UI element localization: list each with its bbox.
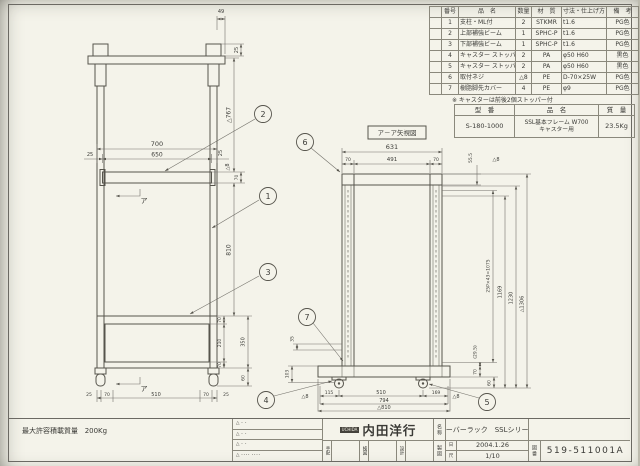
stamp-cell-kenzu: 検図 [359, 440, 396, 461]
cell-qty: 2 [516, 51, 532, 62]
header-dim: 寸法・仕上げ方 [562, 7, 607, 18]
dim-810: 810 [226, 244, 233, 256]
cell-no: 3 [442, 40, 459, 51]
revision-row: △ ･ ･ [233, 440, 322, 451]
model-value-row: S-180-1000 SSL基本フレーム W700 キャスター用 23.5Kg [455, 116, 635, 138]
header-sym [430, 7, 442, 18]
cell-dim: φ50 H60 [562, 51, 607, 62]
stamp-cell-tehai: 手配 [322, 440, 359, 461]
dim-70-base: 70 [473, 369, 479, 375]
cell-name: 支柱・ML付 [459, 18, 516, 29]
header-qty: 数量 [516, 7, 532, 18]
cell-sym [430, 84, 442, 95]
cell-name: キャスター ストッパーなし [459, 62, 516, 73]
cell-dim: t1.6 [562, 40, 607, 51]
dim-794: 794 [379, 398, 389, 404]
dim-1306: △1306 [520, 296, 526, 313]
cell-note: PG色 [607, 73, 639, 84]
parts-row: 7 樹脂脚先カバー 4 PE φ9 PG色 [430, 84, 639, 95]
mark-delta8-br: △8 [452, 394, 459, 400]
model-number: S-180-1000 [455, 116, 515, 138]
dim-b510: 510 [151, 392, 161, 398]
header-no: 番号 [442, 7, 459, 18]
date-value: 2004.1.26 [457, 440, 528, 450]
cell-note: PG色 [607, 18, 639, 29]
mark-delta8-front: △8 [225, 163, 231, 170]
parts-row: 5 キャスター ストッパーなし 2 PA φ50 H60 黒色 [430, 62, 639, 73]
header-model: 型 番 [455, 105, 515, 116]
dim-210: 210 [217, 339, 223, 348]
dim-70-beam: 70 [234, 175, 240, 181]
header-name: 品 名 [459, 7, 516, 18]
callout-1: 1 [265, 192, 270, 201]
header-prod-name: 品 名 [515, 105, 599, 116]
front-view-geometry [88, 44, 225, 386]
dim-491: 491 [387, 157, 398, 163]
cell-mat: PA [532, 62, 562, 73]
cell-name: 上部補強ビーム [459, 29, 516, 40]
cell-qty: 1 [516, 29, 532, 40]
cell-no: 2 [442, 29, 459, 40]
dim-70-r: 70 [433, 157, 439, 163]
side-view-dimensions: 631 70 491 70 55.5 △8 25P×43=1075 1169 [285, 143, 532, 412]
dim-60-caster: 60 [487, 380, 493, 386]
dim-70-a: 70 [217, 317, 223, 323]
dim-55-5: 55.5 [468, 153, 474, 163]
revision-block: △ ･ ･ △ ･ ･ △ ･ ･ △ ････ ････ [232, 419, 322, 461]
cell-note: PG色 [607, 84, 639, 95]
parts-row: 1 支柱・ML付 2 STKMR t1.6 PG色 [430, 18, 639, 29]
dim-29-5: (29.5) [473, 345, 479, 359]
parts-row: 4 キャスター ストッパー付 2 PA φ50 H60 黒色 [430, 51, 639, 62]
cell-mat: PA [532, 51, 562, 62]
front-caster-left [95, 368, 106, 386]
cell-note: 黒色 [607, 62, 639, 73]
cell-note: PG色 [607, 40, 639, 51]
title-block: 最大許容積載質量 200Kg △ ･ ･ △ ･ ･ △ ･ ･ △ ････ … [8, 418, 630, 461]
cell-qty: 4 [516, 84, 532, 95]
cell-mat: STKMR [532, 18, 562, 29]
model-table: 型 番 品 名 質 量 S-180-1000 SSL基本フレーム W700 キャ… [454, 104, 635, 138]
cell-no: 5 [442, 62, 459, 73]
dim-1230: 1230 [509, 292, 515, 305]
scale-value: 1/10 [457, 451, 528, 462]
date-scale-block: 日 2004.1.26 尺 1/10 [445, 440, 528, 461]
date-row: 日 2004.1.26 [446, 440, 528, 451]
stamp-cell-sekkei: 設計 [396, 440, 433, 461]
drawing-sheet: 49 25 △767 700 650 25 25 △8 [0, 0, 640, 466]
cell-sym [430, 62, 442, 73]
cell-sym [430, 51, 442, 62]
callout-7: 7 [304, 313, 309, 322]
side-view-callouts: 6 7 4 5 [258, 134, 496, 411]
dim-631: 631 [386, 143, 398, 151]
company-logo-icon: UCHIDA [340, 427, 360, 433]
dim-b25r: 25 [223, 392, 229, 398]
cell-dim: t1.6 [562, 18, 607, 29]
dim-700: 700 [151, 140, 163, 148]
callout-6: 6 [302, 138, 307, 147]
cell-dim: t1.6 [562, 29, 607, 40]
cell-no: 7 [442, 84, 459, 95]
dim-25-left: 25 [87, 152, 93, 158]
dim-103: 103 [285, 370, 291, 379]
stamp-label: 設計 [397, 440, 406, 461]
scale-label: 尺 [446, 451, 457, 462]
cell-mat: PE [532, 84, 562, 95]
caster-note: ※ キャスターは前後2個ストッパー付 [452, 95, 553, 104]
revision-row: △ ････ ････ [233, 451, 322, 462]
revision-row: △ ･ ･ [233, 430, 322, 441]
cell-note: 黒色 [607, 51, 639, 62]
company-logo-cell: UCHIDA 内田洋行 [322, 419, 433, 440]
side-view-title: ア－ア矢視図 [378, 128, 417, 137]
max-load-label: 最大許容積載質量 [22, 427, 78, 435]
product-title-cell [528, 419, 630, 440]
dim-767: △767 [226, 107, 233, 123]
callout-4: 4 [263, 396, 268, 405]
draft-label: 製図 [433, 440, 445, 461]
dim-b25l: 25 [86, 392, 92, 398]
model-header-row: 型 番 品 名 質 量 [455, 105, 635, 116]
dim-25-cap: 25 [234, 47, 240, 53]
max-load-value: 200Kg [85, 427, 107, 435]
dim-25-right: 25 [218, 150, 224, 156]
front-view: 49 25 △767 700 650 25 25 △8 [84, 9, 277, 402]
cell-dim: φ50 H60 [562, 62, 607, 73]
series-name: サーバーラック SSLシリーズ [445, 419, 528, 440]
front-caster-right [208, 368, 219, 386]
header-note: 備 考 [607, 7, 639, 18]
dim-49: 49 [218, 9, 224, 15]
cell-qty: 2 [516, 62, 532, 73]
dim-b70r: 70 [203, 392, 209, 398]
product-name-line1: SSL基本フレーム W700 [516, 120, 597, 126]
stamp-label: 手配 [323, 440, 332, 461]
cell-name: 取付ネジ [459, 73, 516, 84]
front-view-dimensions: 49 25 △767 700 650 25 25 △8 [84, 9, 252, 402]
stamp-label: 検図 [360, 440, 369, 461]
weight-value: 23.5Kg [599, 116, 635, 138]
dim-1169: 1169 [498, 286, 504, 299]
cell-sym [430, 29, 442, 40]
company-name: 内田洋行 [362, 420, 416, 439]
header-mat: 材 質 [532, 7, 562, 18]
dim-pitch: 25P×43=1075 [486, 259, 492, 292]
cell-name: 下部補強ビーム [459, 40, 516, 51]
cell-name: キャスター ストッパー付 [459, 51, 516, 62]
parts-row: 2 上部補強ビーム 1 SPHC-P t1.6 PG色 [430, 29, 639, 40]
side-view-title-box: ア－ア矢視図 [368, 126, 426, 139]
cell-no: 4 [442, 51, 459, 62]
cell-sym [430, 40, 442, 51]
dim-169: 169 [432, 390, 441, 396]
mark-delta8-bl: △8 [301, 394, 308, 400]
dim-810: △810 [377, 405, 390, 411]
product-name-line2: キャスター用 [516, 127, 597, 133]
callout-5: 5 [484, 398, 489, 407]
dim-650: 650 [151, 152, 163, 159]
cell-qty: △8 [516, 73, 532, 84]
cell-mat: PE [532, 73, 562, 84]
product-name-cell: SSL基本フレーム W700 キャスター用 [515, 116, 599, 138]
dim-60: 60 [241, 375, 247, 381]
cell-name: 樹脂脚先カバー [459, 84, 516, 95]
cell-dim: D-70×25W [562, 73, 607, 84]
max-load-cell: 最大許容積載質量 200Kg [8, 419, 232, 461]
cell-no: 1 [442, 18, 459, 29]
cell-qty: 1 [516, 40, 532, 51]
parts-row: 6 取付ネジ △8 PE D-70×25W PG色 [430, 73, 639, 84]
cell-sym [430, 18, 442, 29]
cell-note: PG色 [607, 29, 639, 40]
cell-mat: SPHC-P [532, 29, 562, 40]
dim-b510: 510 [376, 390, 386, 396]
date-label: 日 [446, 440, 457, 450]
revision-row: △ ･ ･ [233, 419, 322, 430]
callout-3: 3 [265, 268, 270, 277]
cell-dim: φ9 [562, 84, 607, 95]
parts-header-row: 番号 品 名 数量 材 質 寸法・仕上げ方 備 考 [430, 7, 639, 18]
dim-115: 115 [325, 390, 334, 396]
front-view-callouts: 2 1 3 [165, 106, 277, 315]
cell-no: 6 [442, 73, 459, 84]
parts-row: 3 下部補強ビーム 1 SPHC-P t1.6 PG色 [430, 40, 639, 51]
callout-2: 2 [260, 110, 265, 119]
cell-mat: SPHC-P [532, 40, 562, 51]
dim-35: 35 [290, 336, 296, 342]
dim-b70l: 70 [104, 392, 110, 398]
scale-row: 尺 1/10 [446, 451, 528, 462]
dim-70-l: 70 [345, 157, 351, 163]
side-view: ア－ア矢視図 [258, 126, 532, 412]
cell-sym [430, 73, 442, 84]
section-label-a2: ア [141, 385, 148, 393]
drawing-number: 519-511001A [540, 440, 630, 461]
name-label: 名称 [433, 419, 445, 440]
mark-delta8-top: △8 [492, 157, 499, 163]
parts-table: 番号 品 名 数量 材 質 寸法・仕上げ方 備 考 1 支柱・ML付 2 STK… [429, 6, 639, 95]
dim-70-b: 70 [217, 362, 223, 368]
dim-350: 350 [241, 337, 247, 347]
side-view-geometry [318, 174, 450, 388]
drawing-number-label: 図番 [528, 440, 540, 461]
cell-qty: 2 [516, 18, 532, 29]
header-weight: 質 量 [599, 105, 635, 116]
section-label-a1: ア [141, 197, 148, 205]
